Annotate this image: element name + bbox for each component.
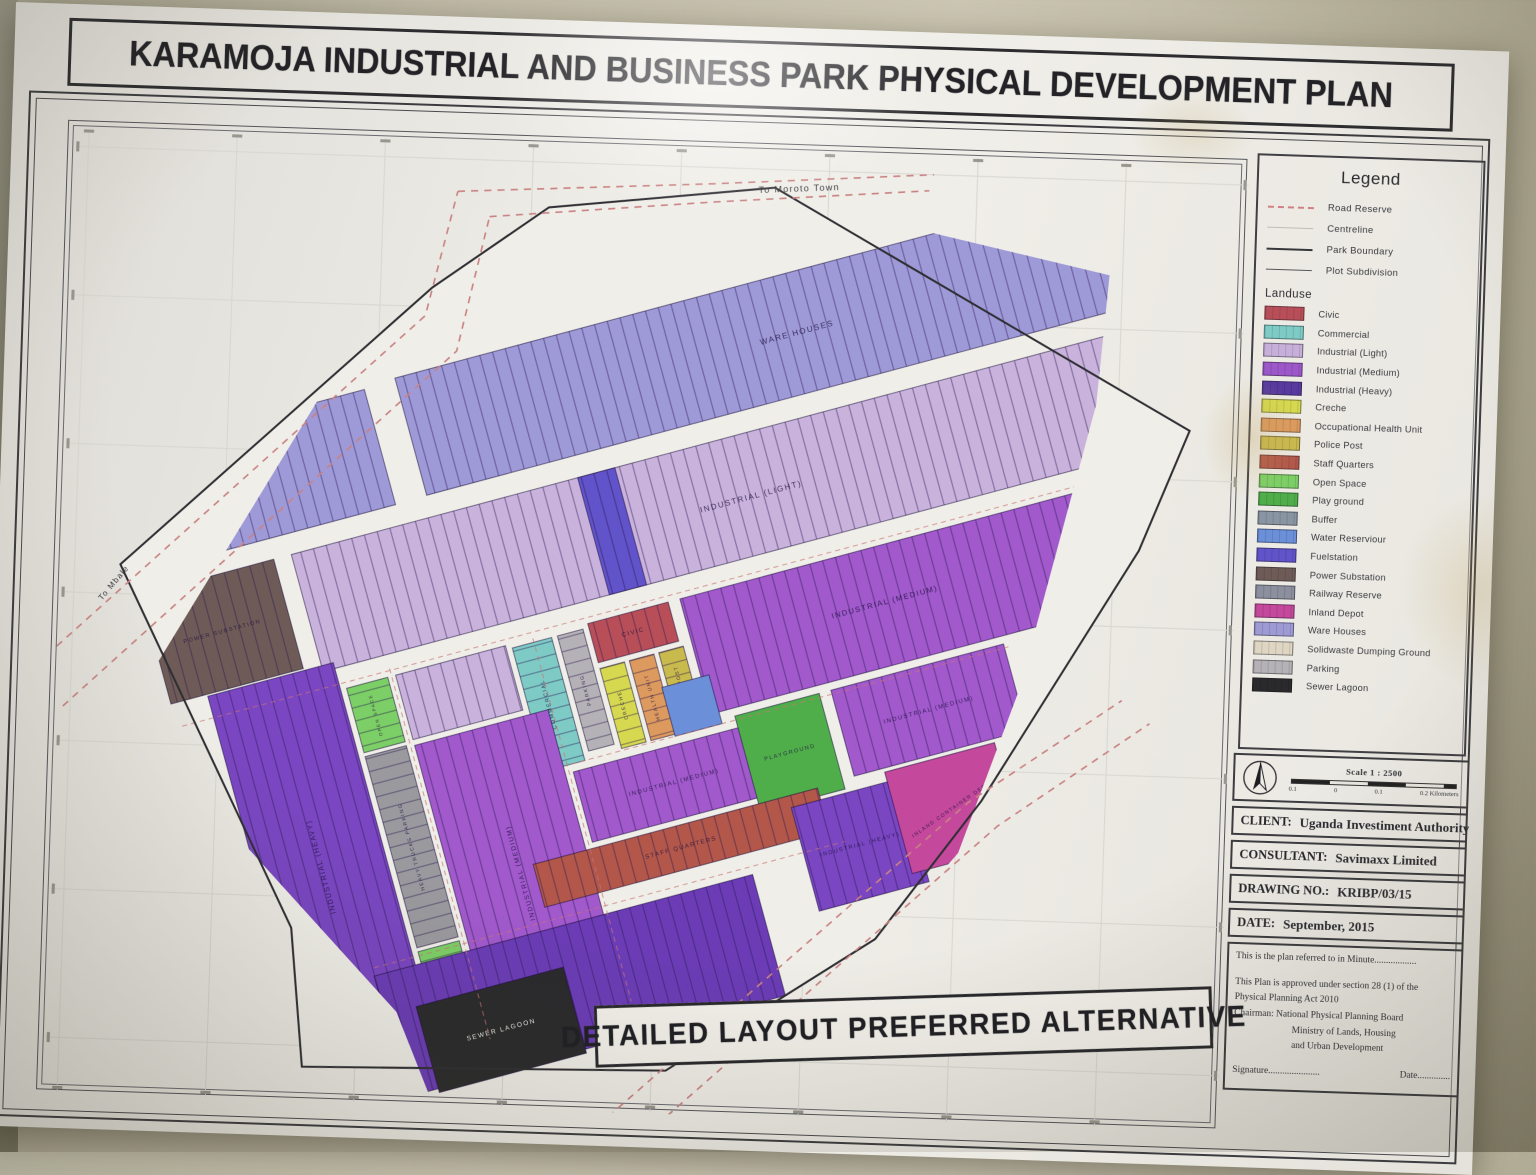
- park-regions: WARE HOUSEWARE HOUSESPOWER SUBSTATIONIND…: [42, 134, 1251, 1132]
- landuse-label: Sewer Lagoon: [1306, 681, 1369, 693]
- titleblock-label: DRAWING NO.:: [1238, 881, 1329, 899]
- legend-line-label: Plot Subdivision: [1326, 266, 1399, 279]
- legend-line-items: Road ReserveCentrelinePark BoundaryPlot …: [1266, 196, 1473, 287]
- map-frame: WARE HOUSEWARE HOUSESPOWER SUBSTATIONIND…: [36, 120, 1248, 1129]
- landuse-swatch: [1264, 306, 1304, 321]
- titleblock-row: DATE:September, 2015: [1228, 908, 1465, 945]
- subtitle-text: DETAILED LAYOUT PREFERRED ALTERNATIVE: [560, 999, 1247, 1054]
- titleblock-row: CLIENT:Uganda Investiment Authority: [1231, 806, 1468, 843]
- landuse-swatch: [1256, 566, 1296, 581]
- north-arrow-icon: [1240, 758, 1279, 797]
- plan-poster: KARAMOJA INDUSTRIAL AND BUSINESS PARK PH…: [0, 2, 1509, 1175]
- landuse-swatch: [1252, 678, 1292, 693]
- titleblock-label: CONSULTANT:: [1239, 847, 1327, 865]
- landuse-label: Staff Quarters: [1313, 458, 1374, 470]
- landuse-swatch: [1254, 603, 1294, 618]
- scale-box: Scale 1 : 2500 0.100.10.2 Kilometers: [1232, 753, 1469, 809]
- landuse-label: Power Substation: [1310, 570, 1386, 583]
- landuse-swatch: [1255, 585, 1295, 600]
- landuse-label: Play ground: [1312, 495, 1364, 507]
- landuse-swatch: [1259, 473, 1299, 488]
- landuse-swatch: [1259, 455, 1299, 470]
- approval-note: Ministry of Lands, Housing: [1291, 1025, 1451, 1043]
- landuse-label: Police Post: [1314, 440, 1363, 452]
- road-label: To Mbale: [97, 564, 131, 602]
- landuse-label: Occupational Health Unit: [1315, 421, 1423, 435]
- landuse-swatch: [1257, 529, 1297, 544]
- sheet-frame: WARE HOUSEWARE HOUSESPOWER SUBSTATIONIND…: [0, 90, 1490, 1164]
- signature-line: Signature......................: [1232, 1065, 1320, 1078]
- legend-panel: Legend Road ReserveCentrelinePark Bounda…: [1238, 153, 1486, 756]
- legend-line-sample: [1267, 227, 1313, 230]
- landuse-swatch: [1260, 417, 1300, 432]
- scale-tick: 0.1: [1374, 788, 1382, 795]
- landuse-swatch: [1258, 492, 1298, 507]
- landuse-label: Industrial (Heavy): [1316, 384, 1393, 397]
- approval-note: and Urban Development: [1291, 1040, 1451, 1058]
- landuse-label: Commercial: [1318, 328, 1370, 340]
- landuse-swatch: [1257, 510, 1297, 525]
- landuse-swatch: [1264, 324, 1304, 339]
- scale-tick: 0: [1334, 787, 1337, 794]
- titleblock-label: CLIENT:: [1240, 813, 1292, 830]
- landuse-label: Water Reserviour: [1311, 533, 1386, 545]
- scale-tick: 0.2 Kilometers: [1420, 790, 1459, 798]
- legend-line-sample: [1266, 269, 1312, 272]
- site-plan-map: WARE HOUSEWARE HOUSESPOWER SUBSTATIONIND…: [42, 126, 1251, 1133]
- landuse-swatch: [1253, 640, 1293, 655]
- landuse-swatch: [1252, 659, 1292, 674]
- title-block: Scale 1 : 2500 0.100.10.2 Kilometers CLI…: [1222, 753, 1469, 1103]
- landuse-label: Open Space: [1313, 477, 1367, 489]
- landuse-label: Buffer: [1311, 514, 1337, 525]
- landuse-swatch: [1262, 380, 1302, 395]
- landuse-swatch: [1260, 436, 1300, 451]
- date-line: Date..............: [1400, 1071, 1451, 1083]
- titleblock-value: KRIBP/03/15: [1337, 884, 1412, 902]
- approval-notes-box: This is the plan referred to in Minute..…: [1223, 942, 1464, 1098]
- landuse-label: Industrial (Medium): [1316, 365, 1400, 378]
- legend-line-sample: [1268, 205, 1314, 209]
- titleblock-row: DRAWING NO.:KRIBP/03/15: [1229, 874, 1466, 911]
- landuse-label: Creche: [1315, 403, 1346, 414]
- landuse-heading: Landuse: [1265, 288, 1469, 307]
- titleblock-row: CONSULTANT:Savimaxx Limited: [1230, 840, 1467, 877]
- legend-line-sample: [1267, 247, 1313, 251]
- legend-line-label: Road Reserve: [1328, 203, 1393, 216]
- landuse-label: Ware Houses: [1308, 626, 1366, 638]
- landuse-swatch: [1254, 622, 1294, 637]
- landuse-label: Solidwaste Dumping Ground: [1307, 644, 1431, 658]
- landuse-swatch: [1256, 547, 1296, 562]
- landuse-items: CivicCommercialIndustrial (Light)Industr…: [1252, 304, 1469, 701]
- titleblock-label: DATE:: [1237, 915, 1275, 931]
- legend-line-label: Centreline: [1327, 224, 1374, 237]
- titleblock-value: Savimaxx Limited: [1335, 850, 1437, 869]
- scale-label: Scale 1 : 2500: [1287, 765, 1461, 781]
- landuse-label: Fuelstation: [1310, 551, 1358, 563]
- landuse-label: Railway Reserve: [1309, 588, 1382, 600]
- landuse-label: Industrial (Light): [1317, 347, 1388, 359]
- landuse-label: Civic: [1318, 310, 1339, 321]
- landuse-label: Inland Depot: [1308, 607, 1363, 619]
- landuse-swatch: [1262, 362, 1302, 377]
- landuse-swatch: [1263, 343, 1303, 358]
- photo-of-plan: { "title": "KARAMOJA INDUSTRIAL AND BUSI…: [0, 0, 1536, 1152]
- legend-title: Legend: [1269, 166, 1474, 193]
- scale-tick: 0.1: [1289, 786, 1297, 793]
- legend-line-label: Park Boundary: [1326, 245, 1393, 258]
- landuse-label: Parking: [1307, 663, 1340, 674]
- titleblock-value: Uganda Investiment Authority: [1299, 815, 1469, 837]
- titleblock-value: September, 2015: [1283, 916, 1375, 935]
- landuse-swatch: [1261, 399, 1301, 414]
- road-label: To Moroto Town: [758, 182, 840, 195]
